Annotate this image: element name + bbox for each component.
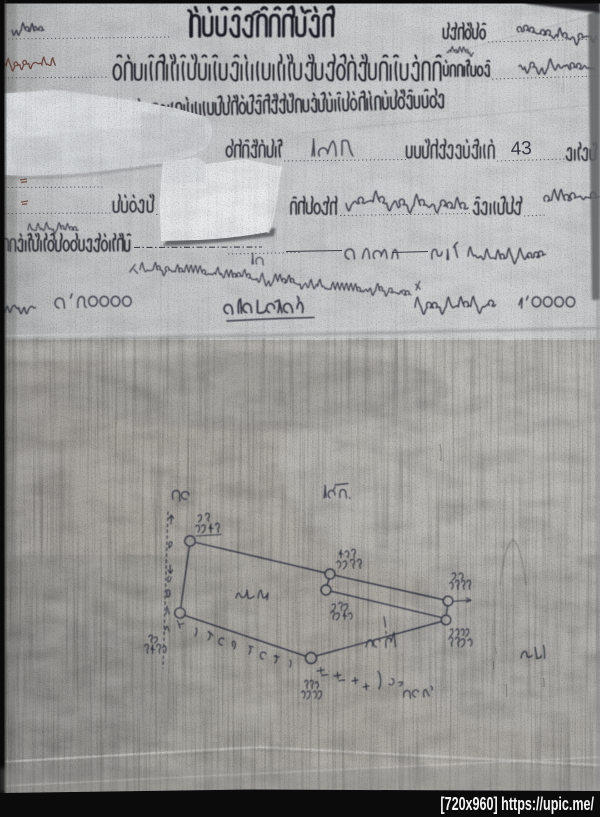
svg-text:[720x960] https://upic.me/: [720x960] https://upic.me/ — [440, 795, 594, 815]
